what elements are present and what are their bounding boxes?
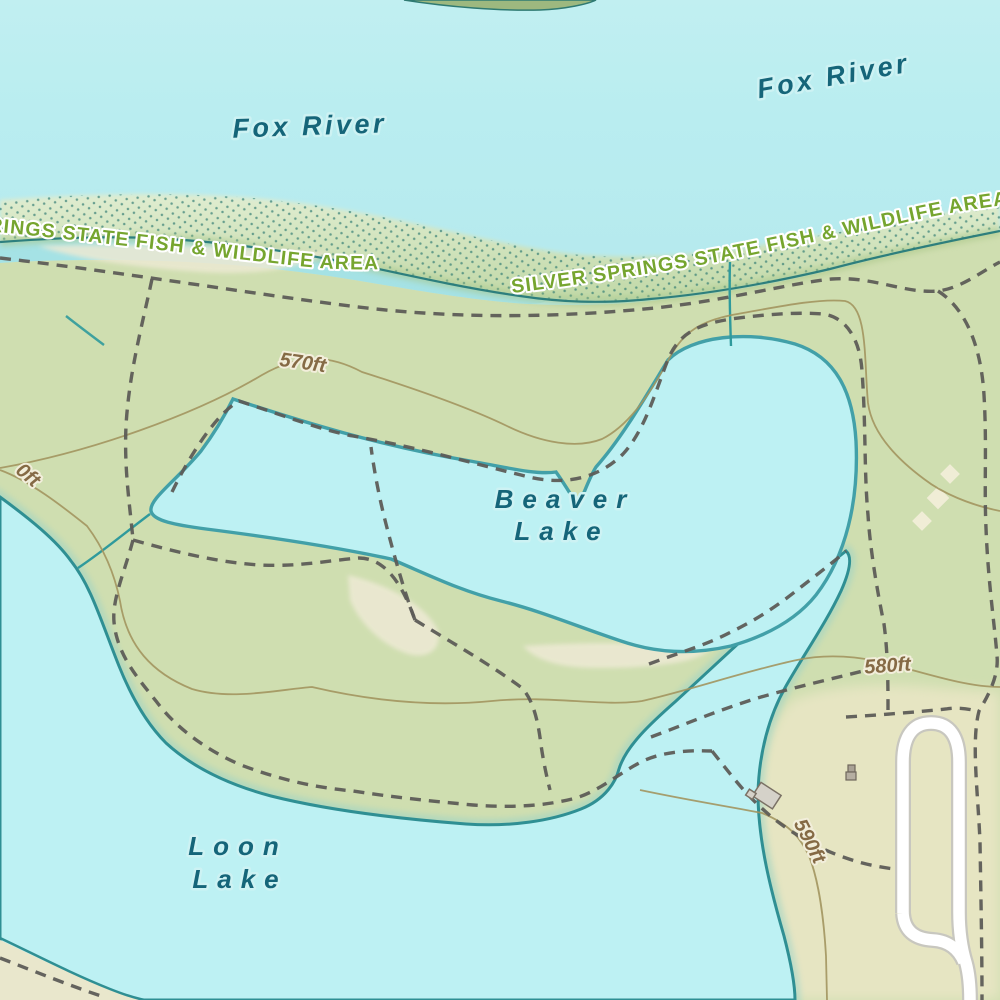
stream-to-beaver-lake (730, 262, 731, 346)
beaver-lake-label-line2: Lake (514, 516, 609, 546)
map-svg[interactable]: RINGS STATE FISH & WILDLIFE AREA SILVER … (0, 0, 1000, 1000)
loon-lake-label-line2: Lake (192, 864, 287, 894)
fox-river-label-1: Fox River (232, 108, 387, 143)
loon-lake-label-line1: Loon (188, 831, 288, 861)
beaver-lake-label-line1: Beaver (495, 484, 636, 514)
contour-label-580: 580ft (864, 653, 913, 678)
building-small (846, 765, 856, 780)
map-canvas[interactable]: RINGS STATE FISH & WILDLIFE AREA SILVER … (0, 0, 1000, 1000)
